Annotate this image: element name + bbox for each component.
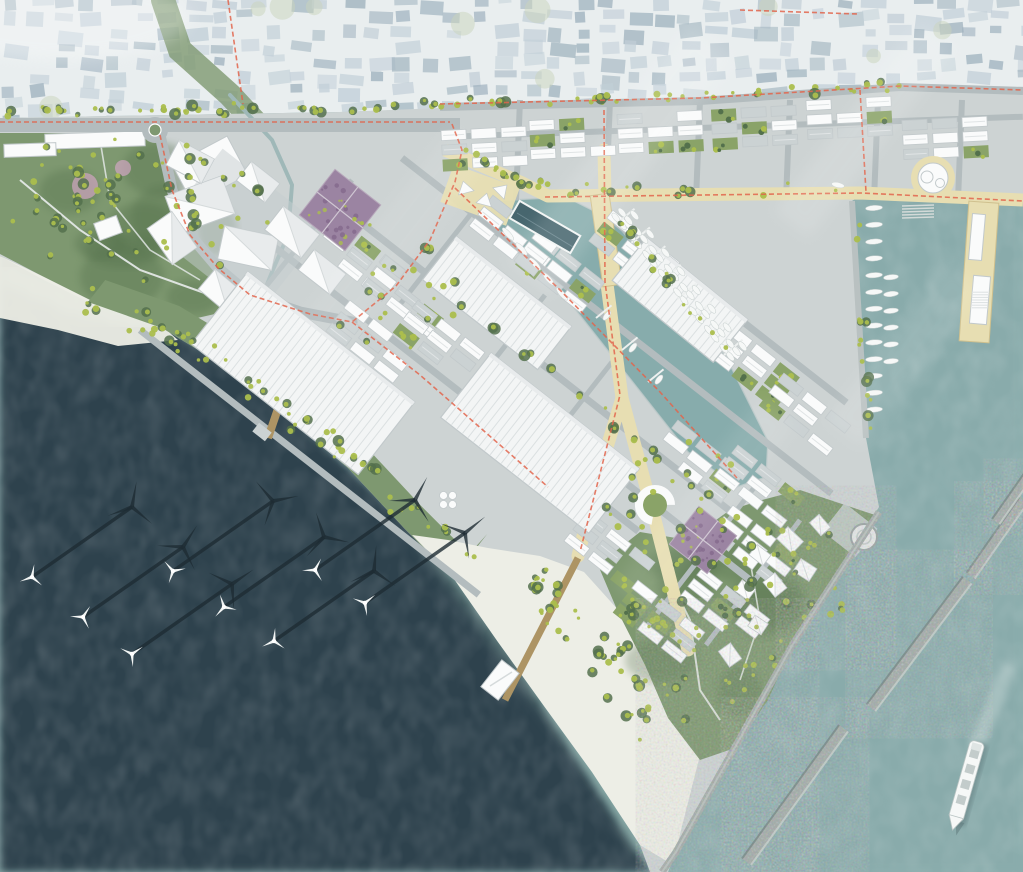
tree [472,554,477,559]
tree [10,219,15,224]
tree [261,389,265,393]
building-cluster [902,116,989,163]
tree [644,717,649,722]
tree [576,393,582,399]
tree [108,108,113,113]
tree [643,457,648,462]
tree [647,625,650,628]
tree [82,183,87,188]
tree [627,513,632,518]
tree [454,102,461,109]
tree [854,236,861,243]
tree [535,184,541,190]
tree [81,221,85,225]
tree [232,101,236,105]
tree [627,644,631,648]
masterplan-canvas [0,0,1023,872]
tree [284,402,289,407]
tree [99,215,105,221]
tree [383,311,388,316]
row-building [712,123,737,134]
harbour-steps [902,211,934,212]
tree [604,406,607,409]
small-tanks [440,492,448,500]
tree [736,611,741,616]
tree [659,600,662,603]
tree [68,165,72,169]
tree [573,609,577,613]
tree [541,578,545,582]
tree [730,699,735,704]
tree [616,643,620,647]
tree [150,109,154,113]
tree [747,577,757,587]
tree [743,561,748,566]
tree [793,572,796,575]
tree [221,175,225,179]
tree [187,174,193,180]
tree [852,89,856,93]
tree [44,107,51,114]
crescent-courtyard [643,493,667,517]
tree [627,229,634,236]
tree [650,489,656,495]
tree [360,461,366,467]
tree [362,106,367,111]
tree [860,359,865,364]
tree [813,93,819,99]
tree [409,505,415,511]
tree [631,676,637,682]
tree [698,316,702,320]
turbine-hub [363,601,367,605]
tree [410,267,417,274]
tree [635,185,640,190]
tree [756,88,761,93]
tree [864,82,870,88]
row-building [502,155,527,166]
tree [360,221,364,225]
turbine-hub [313,568,317,572]
tree [174,342,178,346]
tree [865,320,869,324]
tree [127,229,131,233]
tree [638,738,642,742]
tree [491,324,496,329]
tree [160,325,166,331]
tree [43,144,49,150]
tree [4,113,11,120]
tree [219,224,224,229]
tree [175,330,180,335]
tree [190,196,196,202]
row-building [502,141,527,152]
tree [783,598,790,605]
turbine-hub [130,652,134,656]
tree [224,358,228,362]
tree [597,94,603,100]
tree [754,625,759,630]
tree [790,551,796,557]
tree [688,311,692,315]
tree [808,541,812,545]
tree [733,514,740,521]
tree [692,648,696,652]
tree [401,336,405,340]
tree [106,182,111,187]
tree [555,604,559,608]
tree [602,636,607,641]
tree [710,330,715,335]
tree [779,528,785,534]
tree [338,439,343,444]
tree [352,217,357,222]
tree [616,652,620,656]
tree [605,659,612,666]
tree [535,576,540,581]
tree [629,475,635,481]
tree [720,528,724,532]
tree [350,109,355,114]
tree [639,524,645,530]
tree [248,384,253,389]
tree [312,106,316,110]
tree [549,366,555,372]
tree [645,706,651,712]
tree [751,673,755,677]
tree [681,718,686,723]
tree [544,567,548,571]
tree [169,340,174,345]
tree [51,221,55,225]
tree [324,429,330,435]
tree [330,428,336,434]
tree [115,173,120,178]
tree [526,183,531,188]
tree [618,668,624,674]
tree [373,106,380,113]
tree [74,171,80,177]
tree [192,104,196,108]
tree [613,427,617,431]
tree [432,297,435,300]
tree [685,187,691,193]
tree [615,523,622,530]
tree [197,358,200,361]
tree [609,513,612,516]
tree [743,663,748,668]
tree [500,170,506,176]
tree [109,251,114,256]
tree [288,428,294,434]
tree [555,590,562,597]
turbine-hub [30,575,34,579]
tree [806,546,810,550]
tree [165,187,168,190]
small-tanks [440,501,448,509]
tree [858,338,863,343]
tree [183,109,186,112]
tree [450,278,457,285]
tree [723,625,728,630]
tree [604,92,611,99]
tree [188,189,194,195]
tree [410,334,417,341]
tree [212,343,217,348]
tree [56,107,63,114]
tree [423,99,426,102]
tree [425,316,430,321]
tree [256,379,261,384]
tree [731,91,734,94]
small-tanks [449,501,457,509]
tree [632,495,636,499]
tree [545,622,549,626]
tree [274,396,279,401]
tree [85,301,89,305]
tree [745,598,749,602]
tree [750,579,753,582]
tree [857,319,863,325]
tree [522,352,526,356]
tree [82,309,89,316]
tree [94,187,101,194]
tree [113,138,117,142]
tree [232,184,236,188]
tree [194,211,198,215]
tree [636,684,643,691]
tree [789,84,795,90]
tree [723,594,728,599]
tree [810,603,814,607]
tree [164,245,169,250]
tree [767,582,774,589]
tree [161,161,164,164]
tree [365,340,369,344]
tree [240,105,245,110]
tree [148,319,153,324]
tree [635,460,641,466]
tree [727,681,731,685]
tree [696,633,701,638]
row-building [933,132,958,143]
tree [313,109,319,115]
tree [85,237,91,243]
tree [565,637,570,642]
tree [535,585,541,591]
tree [174,111,178,115]
tree [450,311,457,318]
tree [513,174,519,180]
tree [677,639,682,644]
row-building [741,107,766,118]
tree [667,279,671,283]
tree [378,316,383,321]
harbour-steps [902,217,934,218]
tree [161,104,166,109]
tree [694,626,698,630]
tree [440,283,447,290]
tree [650,447,655,452]
turbine-hub [272,639,276,643]
tree [93,305,100,312]
tree [255,189,260,194]
harbour-steps [902,214,934,215]
tree [723,345,728,350]
tree [184,143,190,149]
tree [650,267,656,273]
tree [153,162,159,168]
tree [145,309,150,314]
tree [649,254,654,259]
tree [235,216,240,221]
tree [91,152,97,158]
tree [630,612,634,616]
tree [577,617,580,620]
tree [505,175,509,179]
row-building [771,105,796,116]
tree [537,178,544,185]
tree [190,339,193,342]
tree [663,624,668,629]
tree [724,679,728,683]
tree [742,687,747,692]
tree [590,668,594,672]
tree [631,437,638,444]
tree [134,250,138,254]
tree [304,415,310,421]
tree [827,611,834,618]
tree [109,193,112,196]
small-tanks [449,492,457,500]
tree [665,284,668,287]
tree [351,453,358,460]
tree [265,220,270,225]
tree [387,494,392,499]
tree [186,332,191,337]
tree [287,412,291,416]
tree [57,149,61,153]
tree [812,543,817,548]
row-building [932,118,957,129]
tree [88,230,92,234]
tree [217,108,223,114]
tree [76,209,80,213]
tree [857,343,861,347]
tree [391,102,396,107]
tree [251,106,255,110]
tree [654,615,661,622]
tree [115,198,119,202]
tree [142,279,146,283]
tree [684,472,689,477]
tree [654,457,661,464]
tree [604,694,610,700]
tree [670,632,676,638]
tree [779,639,783,643]
tree [138,108,142,112]
tree [519,180,523,184]
tree [196,222,199,225]
tree [545,181,551,187]
tree [547,102,553,108]
tree [686,439,692,445]
tree [151,326,158,333]
tree [90,199,95,204]
tree [539,608,544,613]
tree [827,531,831,535]
tree [760,192,767,199]
main-road [0,118,460,132]
tree [772,552,777,557]
tree [40,163,44,167]
tree [749,543,755,549]
tree [547,607,553,613]
tree [75,201,79,205]
tree [672,685,679,692]
tree [140,327,145,332]
tree [137,152,141,156]
tree [375,468,381,474]
harbour-steps [902,208,934,209]
tree [680,186,685,191]
tree [641,709,645,713]
tree [786,181,790,185]
tree [30,178,37,185]
tree [61,225,64,228]
tree [680,598,683,601]
tree [693,558,696,561]
tree [409,346,412,349]
tree [338,447,345,454]
tree [318,442,324,448]
masterplan-svg [0,0,1023,872]
tree [712,561,716,565]
tree [553,581,560,588]
tree [135,309,139,313]
tree [620,222,624,226]
tree [733,585,738,590]
row-building [933,147,958,158]
tree [201,161,206,166]
tree [765,527,771,533]
tree [175,349,179,353]
tree [302,106,306,110]
tree [333,455,336,458]
row-building [902,119,927,130]
tree [605,505,609,509]
tree [126,328,132,334]
tree [368,223,372,227]
tree [208,241,214,247]
tree [684,677,688,681]
tree [663,682,667,686]
harbour-steps [902,205,934,206]
tree [48,252,53,257]
tree [433,102,437,106]
tree [239,171,244,176]
tree [625,713,630,718]
tree [597,652,602,657]
row-building [471,128,496,139]
turbine-hub [222,605,226,609]
tree [614,657,618,661]
tree [426,525,430,529]
row-building [807,114,832,125]
tree [707,559,717,569]
tree [724,558,731,565]
tree [634,241,639,246]
